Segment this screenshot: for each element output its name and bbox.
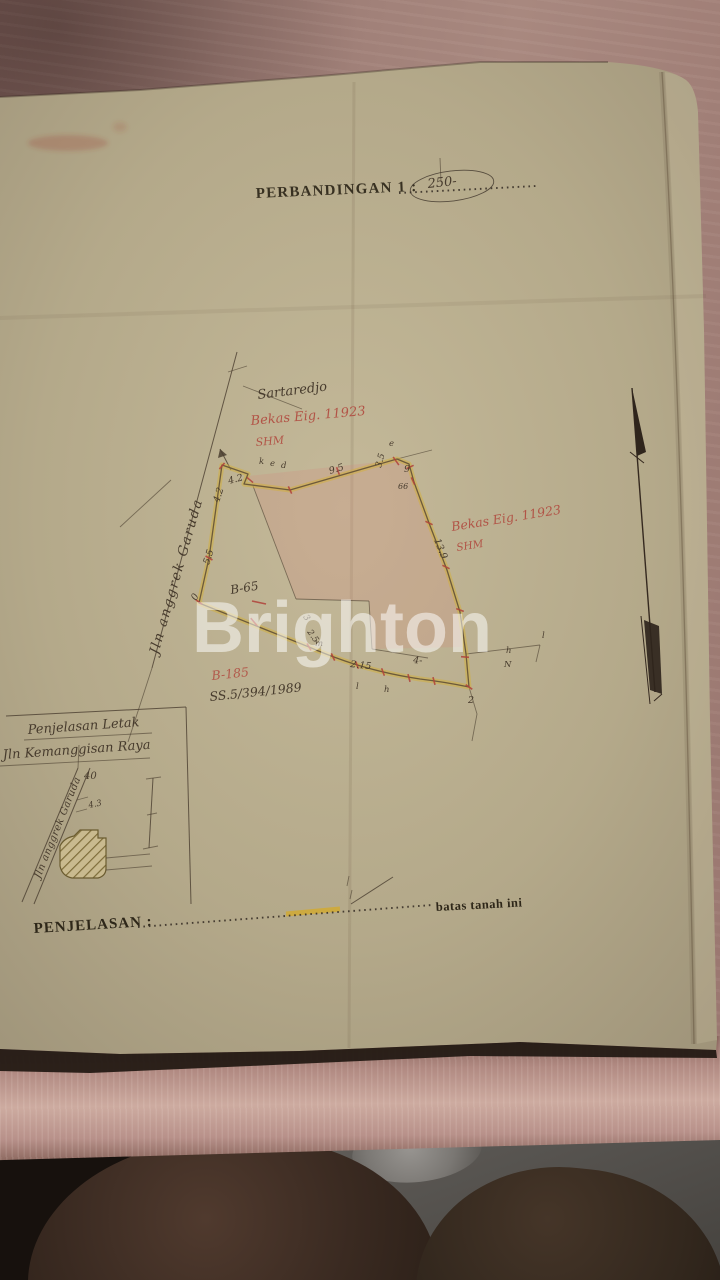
- dim-top-right-c: 66: [398, 482, 408, 491]
- scale-value: 250-: [426, 174, 458, 192]
- letter-e: e: [270, 459, 275, 469]
- letter-h-right: h: [506, 646, 511, 656]
- red-note-upper-line2: SHM: [255, 433, 285, 448]
- letter-l-right: l: [542, 631, 545, 641]
- letter-n-right: N: [503, 660, 512, 670]
- dim-corner: 2: [467, 695, 474, 706]
- letter-e-top: e: [389, 439, 394, 449]
- letter-k: k: [259, 457, 264, 467]
- letter-l: l: [356, 682, 359, 692]
- photo-of-survey-document: PERBANDINGAN 1 : 250-: [0, 0, 720, 1280]
- brighton-watermark: Brighton: [192, 592, 492, 664]
- dim-top-right-b: 9: [404, 464, 410, 475]
- letter-d: d: [281, 461, 287, 471]
- letter-h: h: [384, 685, 389, 695]
